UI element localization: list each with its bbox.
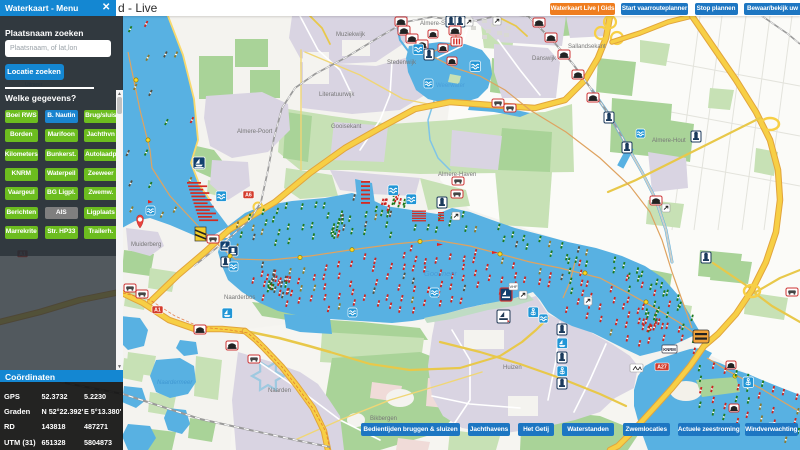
svg-text:Gooisekant: Gooisekant: [331, 124, 362, 130]
svg-text:KNRM: KNRM: [663, 347, 676, 352]
svg-text:Muiderberg: Muiderberg: [131, 242, 161, 248]
svg-text:Stedenwijk: Stedenwijk: [387, 60, 417, 66]
svg-text:Naardermeer: Naardermeer: [157, 380, 193, 386]
svg-text:A27: A27: [657, 365, 667, 371]
svg-text:Danswijk: Danswijk: [532, 56, 557, 62]
svg-text:Almere-Hout: Almere-Hout: [652, 138, 686, 144]
svg-text:VHF: VHF: [510, 284, 519, 289]
svg-text:Naarderbos: Naarderbos: [224, 295, 255, 301]
svg-text:A1: A1: [154, 308, 161, 314]
svg-text:Gooimeer: Gooimeer: [424, 269, 457, 278]
svg-text:Sallandsekant: Sallandsekant: [568, 44, 606, 50]
svg-text:Literatuurwijk: Literatuurwijk: [319, 92, 355, 98]
svg-text:Huizen: Huizen: [503, 365, 522, 371]
svg-text:Bikbergen: Bikbergen: [370, 416, 397, 422]
svg-text:Muziekwijk: Muziekwijk: [336, 32, 366, 38]
svg-text:A6: A6: [245, 193, 252, 199]
svg-text:Naarden: Naarden: [268, 388, 291, 394]
svg-text:Almere-Poort: Almere-Poort: [237, 129, 273, 135]
svg-text:Weerwater: Weerwater: [436, 83, 465, 89]
